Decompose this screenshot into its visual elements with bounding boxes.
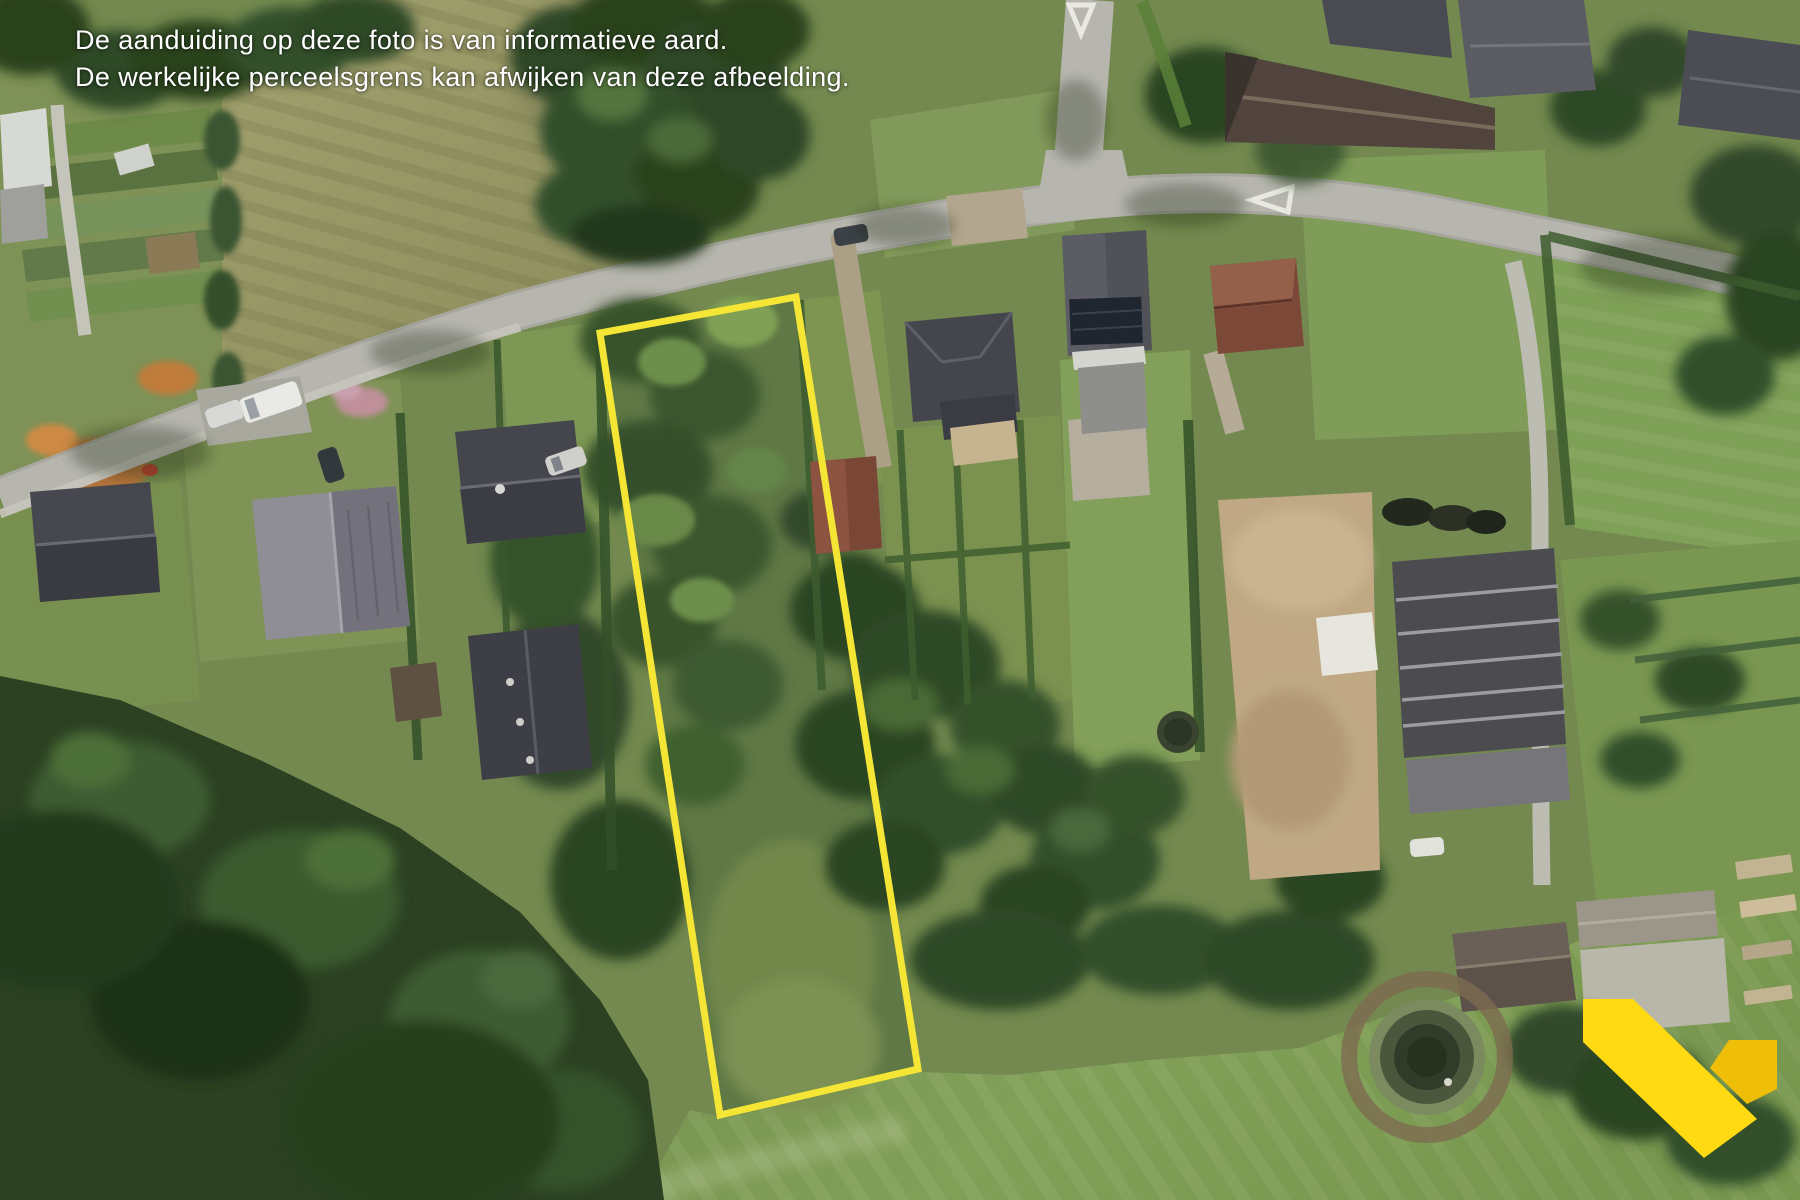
house-roof xyxy=(30,482,160,602)
aerial-scene xyxy=(0,0,1800,1200)
pond xyxy=(1349,979,1505,1135)
disclaimer-line2: De werkelijke perceelsgrens kan afwijken… xyxy=(75,59,850,96)
white-car xyxy=(1409,837,1444,858)
disclaimer-line1: De aanduiding op deze foto is van inform… xyxy=(75,22,850,59)
house-roof-maroon xyxy=(1210,258,1304,354)
barn-roof xyxy=(1392,548,1570,814)
house-roof xyxy=(455,420,586,544)
disclaimer: De aanduiding op deze foto is van inform… xyxy=(75,22,850,96)
house-roof xyxy=(252,486,410,640)
shed-roof xyxy=(390,662,442,722)
aerial-photo: De aanduiding op deze foto is van inform… xyxy=(0,0,1800,1200)
house-roof xyxy=(1458,0,1596,98)
white-shed xyxy=(1316,612,1378,676)
house-roof xyxy=(1678,30,1800,140)
house-roof xyxy=(468,624,592,780)
